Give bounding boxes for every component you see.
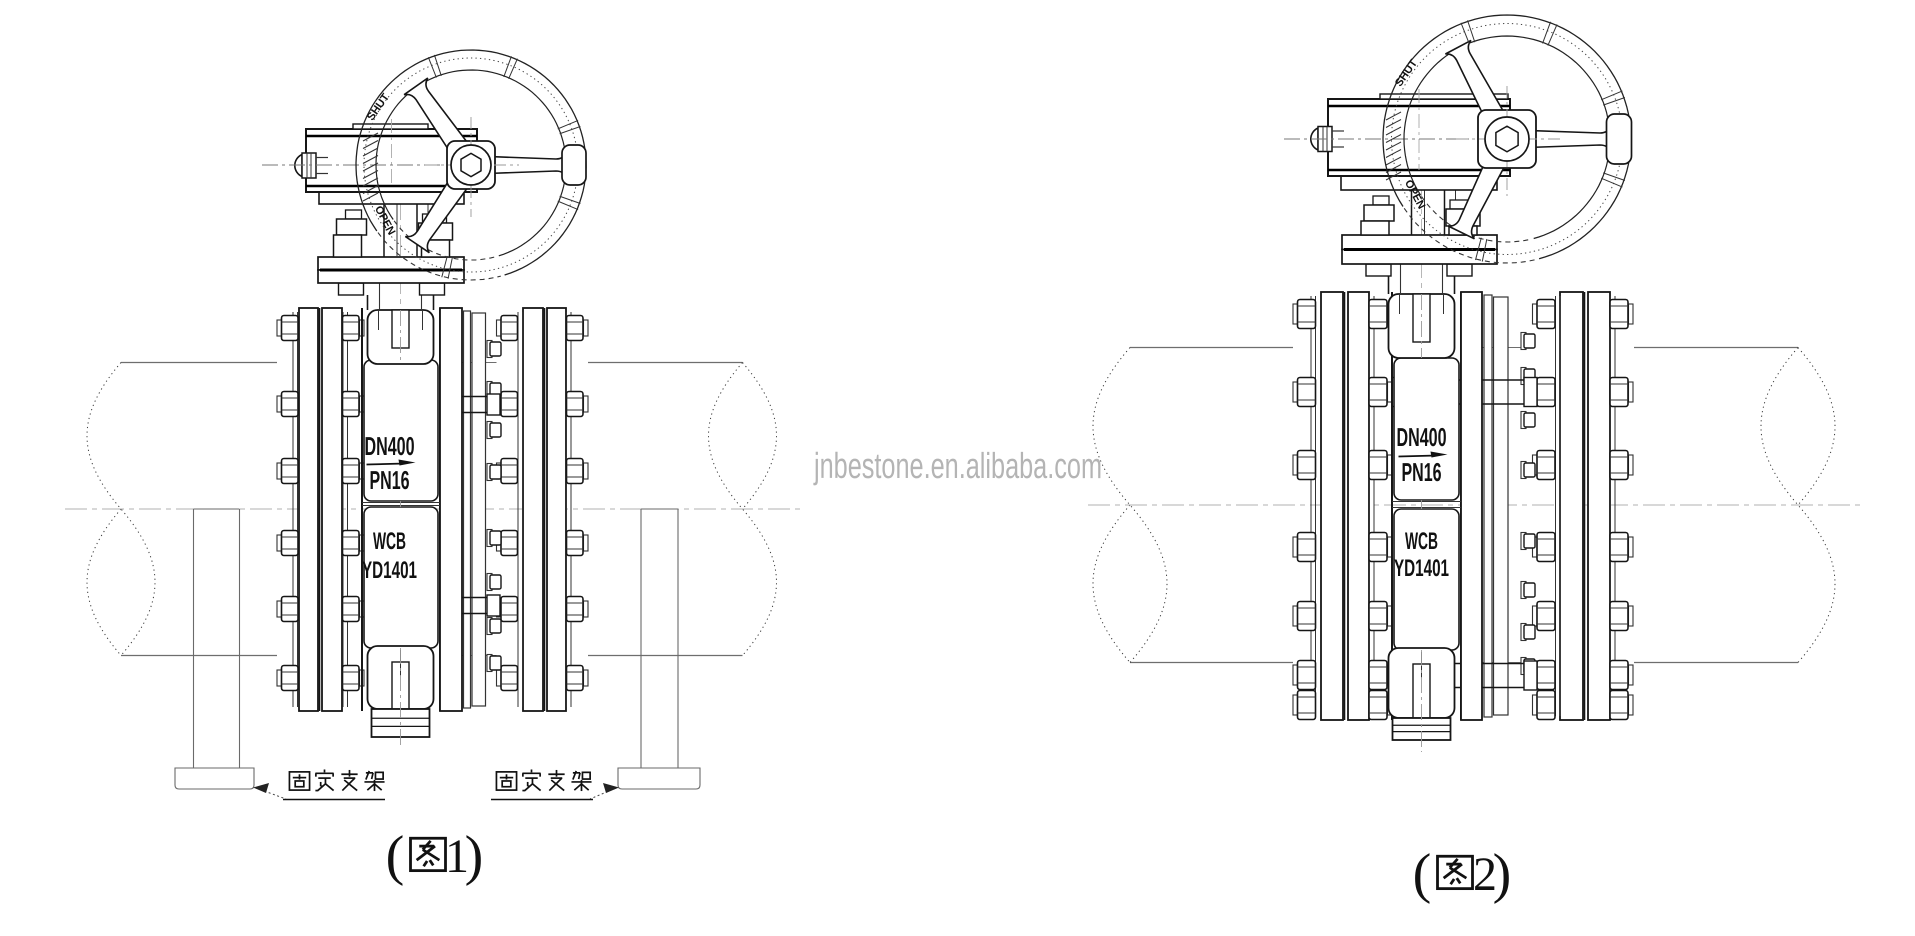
svg-text:DN400: DN400 [364, 431, 414, 461]
svg-text:(: ( [1413, 843, 1432, 905]
svg-text:WCB: WCB [1405, 528, 1438, 555]
svg-text:PN16: PN16 [1401, 457, 1441, 487]
svg-text:): ) [1493, 843, 1512, 905]
svg-text:jnbestone.en.alibaba.com: jnbestone.en.alibaba.com [813, 445, 1102, 486]
svg-text:DN400: DN400 [1396, 422, 1446, 452]
svg-text:(: ( [386, 825, 405, 887]
svg-text:WCB: WCB [373, 528, 406, 555]
svg-text:YD1401: YD1401 [1394, 555, 1449, 582]
svg-text:PN16: PN16 [369, 465, 409, 495]
svg-text:): ) [465, 825, 484, 887]
svg-text:YD1401: YD1401 [362, 557, 417, 584]
